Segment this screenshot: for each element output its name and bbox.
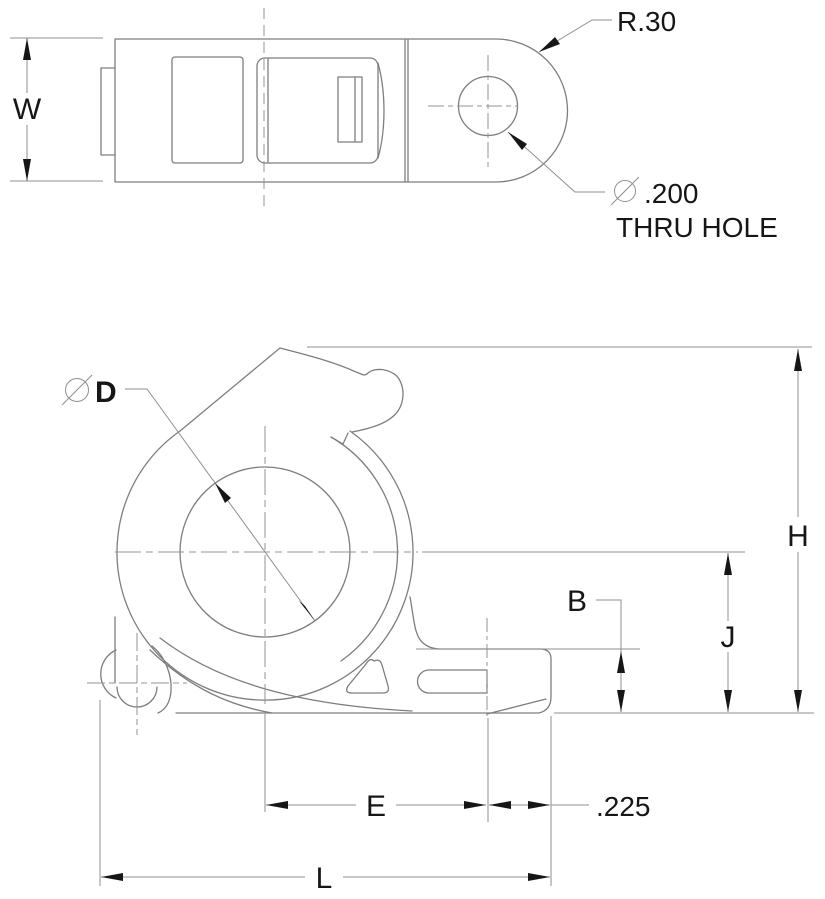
mid-height-label: J [721, 621, 736, 654]
dim-span-E: E [266, 790, 486, 823]
arrow-upper-left [215, 483, 231, 503]
dim-offset-225: .225 [489, 791, 651, 822]
arrow-right [528, 873, 550, 881]
technical-drawing: W R.30 .200 THRU HOLE [0, 0, 825, 899]
bore-diameter-callout: D [62, 375, 315, 621]
dim-length-L: L [101, 862, 550, 895]
dim-height-H: H [787, 349, 809, 712]
side-view-centerlines [87, 426, 487, 735]
side-view-lever-notch [331, 433, 348, 444]
offset-value: .225 [596, 791, 651, 822]
arrow-up [23, 38, 31, 60]
top-view-inner-plate [172, 57, 243, 163]
arrow-left [489, 801, 511, 809]
arrow-up [794, 349, 802, 371]
drawing-canvas: W R.30 .200 THRU HOLE [0, 0, 825, 899]
top-view-buckle [257, 58, 384, 163]
step-leader [596, 600, 621, 712]
arrow-right [528, 801, 550, 809]
top-view-left-tab [101, 68, 115, 155]
diameter-symbol [62, 375, 92, 405]
side-view-body-arc [331, 437, 398, 661]
arrow-up [724, 553, 732, 575]
hole-leader [508, 132, 605, 192]
side-view-lever [180, 348, 403, 432]
height-label: H [787, 520, 809, 553]
dim-width: W [10, 38, 103, 181]
span-label: E [366, 790, 386, 823]
side-view-slot [418, 670, 488, 693]
top-view-body-outline [115, 39, 568, 182]
width-label: W [13, 93, 42, 126]
side-view-base [176, 597, 551, 713]
side-view-part [101, 348, 551, 714]
step-label: B [567, 585, 587, 618]
dim-mid-J: J [721, 553, 736, 712]
radius-label: R.30 [617, 6, 676, 37]
arrow-to-hole [508, 132, 527, 150]
top-view-part [101, 39, 568, 182]
arrow-lower-right [299, 601, 315, 621]
arrow-down [794, 690, 802, 712]
arrow-down [724, 690, 732, 712]
diameter-symbol [611, 177, 639, 205]
thru-hole-callout: .200 THRU HOLE [508, 132, 778, 243]
side-view-knob [101, 617, 171, 713]
arrow-up [617, 651, 625, 673]
arrow-down [23, 159, 31, 181]
side-view-strap-upper [160, 638, 412, 711]
length-label: L [316, 862, 333, 895]
side-view-base-lip [487, 699, 546, 714]
arrow-right [464, 801, 486, 809]
arrow-left [266, 801, 288, 809]
radius-callout: R.30 [539, 6, 676, 52]
arrow-left [101, 873, 123, 881]
arrow-down [617, 690, 625, 712]
side-view-triangle-cutout [347, 660, 389, 693]
bore-label: D [95, 376, 117, 409]
arrow-to-arc [539, 37, 560, 52]
hole-note: THRU HOLE [616, 212, 778, 243]
hole-diameter-value: .200 [644, 178, 699, 209]
